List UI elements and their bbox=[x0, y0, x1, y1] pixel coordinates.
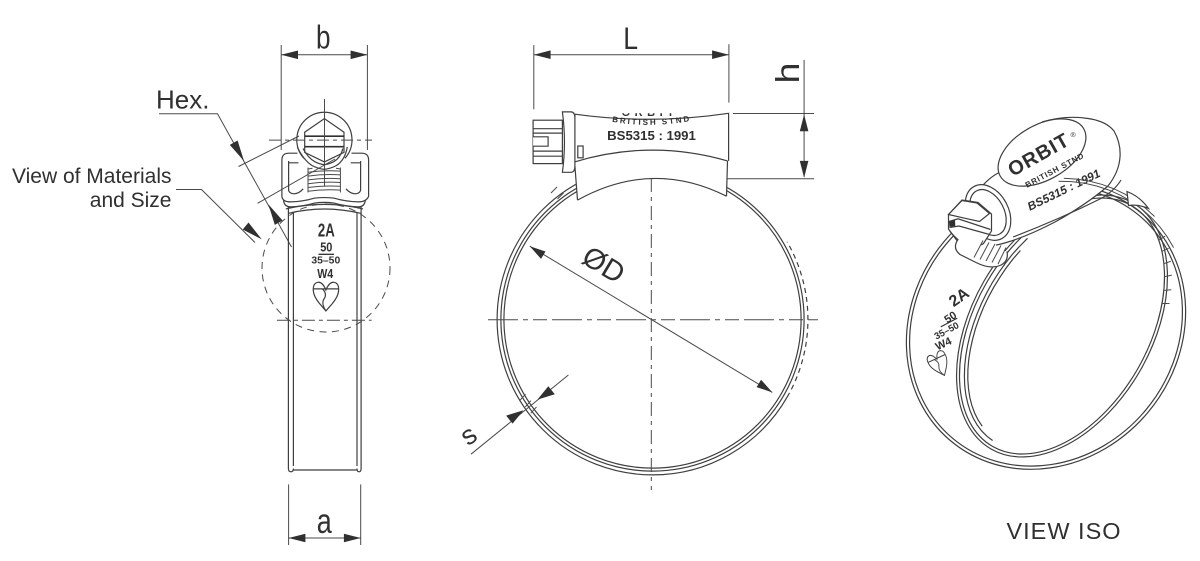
svg-text:b: b bbox=[316, 18, 331, 55]
svg-text:W4: W4 bbox=[317, 267, 333, 281]
svg-text:s: s bbox=[454, 419, 482, 451]
svg-text:2A: 2A bbox=[318, 221, 335, 241]
svg-text:and Size: and Size bbox=[90, 189, 172, 212]
svg-text:L: L bbox=[623, 20, 638, 56]
svg-text:BS5315 : 1991: BS5315 : 1991 bbox=[607, 128, 696, 143]
svg-text:ØD: ØD bbox=[576, 241, 630, 291]
svg-text:h: h bbox=[769, 63, 806, 84]
svg-text:View of Materials: View of Materials bbox=[12, 165, 172, 188]
svg-text:VIEW ISO: VIEW ISO bbox=[1006, 518, 1121, 544]
svg-text:50: 50 bbox=[320, 241, 332, 255]
svg-text:Hex.: Hex. bbox=[156, 85, 209, 115]
svg-text:a: a bbox=[317, 502, 332, 541]
svg-text:2A: 2A bbox=[946, 285, 973, 311]
svg-text:35–50: 35–50 bbox=[311, 255, 340, 267]
